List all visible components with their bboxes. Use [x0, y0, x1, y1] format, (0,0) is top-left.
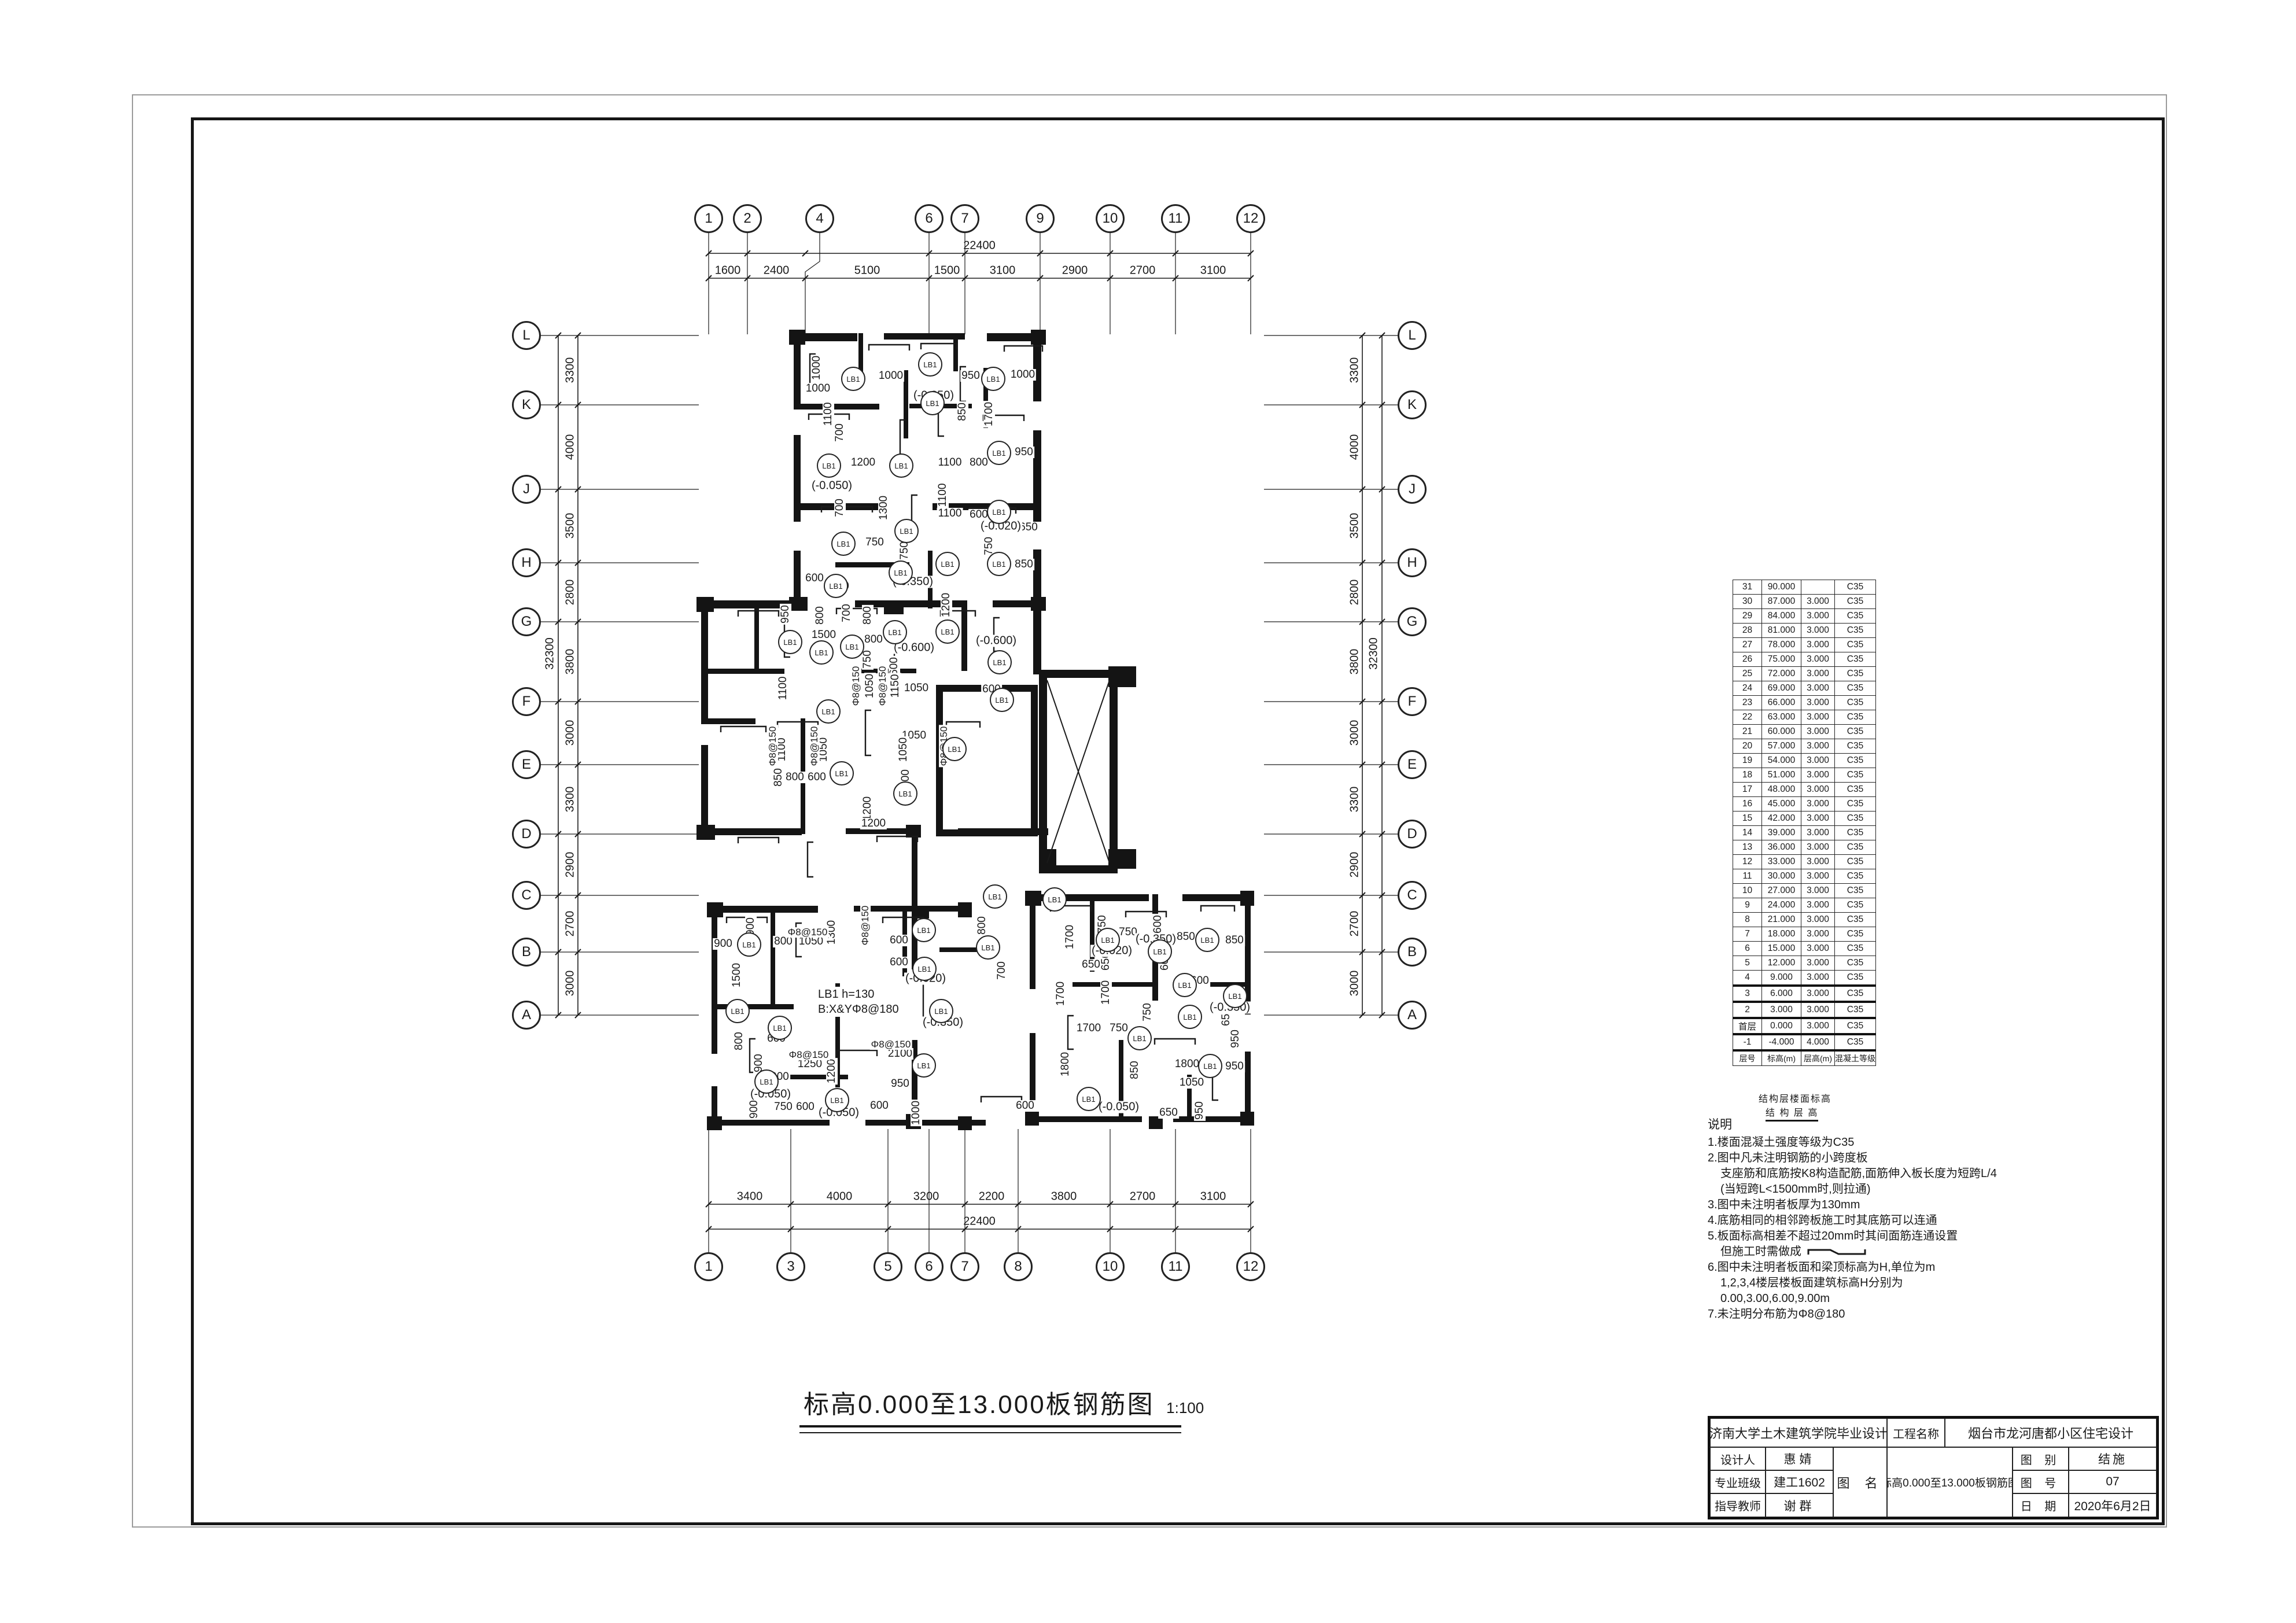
step-symbol-icon	[1807, 1246, 1871, 1258]
slab-tag-lb1: LB1	[920, 391, 945, 415]
grid-bubble-right-F: F	[1398, 687, 1427, 716]
floor-table-cell: C35	[1835, 1018, 1876, 1034]
floor-table-cell: 6	[1733, 942, 1762, 956]
plan-dim: 600	[889, 935, 909, 946]
slab-tag-lb1: LB1	[987, 552, 1011, 576]
floor-table-cell: 31	[1733, 580, 1762, 595]
plan-dim: 1800	[1060, 1051, 1071, 1078]
slab-tag-lb1: LB1	[831, 532, 856, 556]
plan-dim: 1700	[1100, 979, 1112, 1006]
floor-table-cell: 3.000	[1801, 667, 1835, 681]
elevation-label: (-0.600)	[975, 635, 1018, 647]
left-segment-dim: 3000	[564, 720, 577, 746]
floor-table-cell: 12	[1733, 855, 1762, 869]
plan-dim: 950	[1194, 1100, 1206, 1121]
plan-dim: 1100	[937, 482, 949, 508]
floor-table-cell: 3.000	[1801, 826, 1835, 840]
floor-table-cell: C35	[1835, 768, 1876, 783]
rebar-spec: Φ8@150	[787, 927, 829, 938]
slab-tag-lb1: LB1	[816, 699, 841, 724]
plan-dim: 800	[815, 605, 826, 626]
floor-table-cell: -4.000	[1762, 1034, 1801, 1050]
slab-tag-lb1: LB1	[840, 635, 864, 659]
floor-table-row: 2263.0003.000C35	[1733, 710, 1876, 725]
grid-bubble-right-D: D	[1398, 820, 1427, 849]
plan-dim: 850	[1014, 559, 1034, 570]
floor-table-cell: 33.000	[1762, 855, 1801, 869]
note-line: 1,2,3,4楼层楼板面建筑标高H分别为	[1708, 1275, 2078, 1291]
top-segment-dim: 5100	[854, 264, 880, 278]
slab-tag-lb1: LB1	[893, 781, 917, 806]
floor-table-cell: 3.000	[1801, 681, 1835, 696]
floor-table-cell: 3.000	[1801, 1002, 1835, 1018]
slab-tag-lb1: LB1	[918, 352, 942, 377]
plan-dim: 900	[713, 938, 734, 950]
plan-dim: 800	[784, 772, 805, 783]
grid-bubble-top-12: 12	[1236, 204, 1265, 233]
slab-tag-lb1: LB1	[1096, 928, 1120, 952]
floor-table-cell: 63.000	[1762, 710, 1801, 725]
left-segment-dim: 3300	[564, 357, 577, 383]
plan-dim: 750	[862, 649, 874, 670]
slab-tag-lb1: LB1	[929, 999, 953, 1023]
floor-table-cell: 3.000	[1801, 1018, 1835, 1034]
floor-table-cell: C35	[1835, 739, 1876, 754]
left-segment-dim: 2800	[564, 580, 577, 606]
floor-table-cell: C35	[1835, 840, 1876, 855]
floor-table-cell: 7	[1733, 927, 1762, 942]
floor-table-cell: 3.000	[1801, 884, 1835, 898]
plan-dim: 600	[1015, 1100, 1035, 1112]
drawing-sheet: 1246791011122240016002400510015003100290…	[0, 0, 2296, 1623]
floor-table-row: 2572.0003.000C35	[1733, 667, 1876, 681]
grid-bubble-bottom-11: 11	[1161, 1252, 1190, 1281]
floor-table-cell: 11	[1733, 869, 1762, 884]
grid-bubble-top-10: 10	[1096, 204, 1125, 233]
plan-dim: 1700	[1075, 1023, 1102, 1034]
note-line: 2.图中凡未注明钢筋的小跨度板	[1708, 1150, 2078, 1166]
plan-dim: 750	[864, 537, 885, 548]
floor-table-cell: 69.000	[1762, 681, 1801, 696]
plan-dim: 1050	[898, 736, 909, 763]
floor-table-caption1: 结构层楼面标高	[1759, 1091, 1831, 1105]
floor-table-row: 2160.0003.000C35	[1733, 725, 1876, 739]
plan-dim: 1700	[983, 401, 995, 427]
slab-tag-lb1: LB1	[942, 737, 967, 761]
slab-note-label: LB1 h=130 B:X&YΦ8@180	[818, 987, 899, 1017]
elevation-label: (-0.050)	[810, 480, 853, 492]
grid-bubble-left-C: C	[512, 881, 541, 910]
plan-dim: 700	[834, 497, 846, 518]
floor-table-cell: 4.000	[1801, 1034, 1835, 1050]
grid-bubble-bottom-1: 1	[694, 1252, 723, 1281]
floor-table-row: 3087.0003.000C35	[1733, 595, 1876, 609]
floor-table-row: 1748.0003.000C35	[1733, 783, 1876, 797]
plan-dim: 700	[841, 603, 853, 624]
grid-bubble-top-9: 9	[1026, 204, 1055, 233]
floor-table-cell: 45.000	[1762, 797, 1801, 811]
bottom-overall-dim: 22400	[963, 1215, 996, 1229]
floor-table-header-row: 层号标高(m)层高(m)混凝土等级	[1733, 1050, 1876, 1066]
bottom-segment-dim: 4000	[827, 1190, 853, 1204]
floor-table-row: 1954.0003.000C35	[1733, 754, 1876, 768]
title-underline-thick	[799, 1425, 1181, 1427]
floor-table-cell: 23	[1733, 696, 1762, 710]
floor-table-cell: 54.000	[1762, 754, 1801, 768]
plan-dim: 600	[1152, 914, 1164, 935]
class-label: 专业班级	[1710, 1470, 1766, 1493]
notes-block: 说明 1.楼面混凝土强度等级为C352.图中凡未注明钢筋的小跨度板支座筋和底筋按…	[1708, 1115, 2078, 1322]
grid-bubble-right-G: G	[1398, 607, 1427, 636]
floor-table-cell: 24	[1733, 681, 1762, 696]
plan-dim: 1700	[1055, 980, 1067, 1007]
plan-dim: 900	[749, 1099, 760, 1120]
plan-dim: 800	[968, 457, 989, 469]
plan-dim: 750	[899, 540, 911, 561]
plan-dim: 600	[795, 1101, 816, 1113]
floor-table-cell: 首层	[1733, 1018, 1762, 1034]
note-line: 5.板面标高相差不超过20mm时其间面筋连通设置	[1708, 1229, 2078, 1244]
floor-table-cell: 17	[1733, 783, 1762, 797]
floor-table-cell: C35	[1835, 667, 1876, 681]
plan-dim: 1500	[810, 629, 837, 641]
floor-table-cell: 18.000	[1762, 927, 1801, 942]
grid-bubble-right-H: H	[1398, 548, 1427, 577]
right-overall-dim: 32300	[1368, 637, 1381, 670]
floor-table-cell: 6.000	[1762, 986, 1801, 1002]
rebar-spec: Φ8@150	[860, 905, 871, 947]
floor-table-cell: 3.000	[1801, 739, 1835, 754]
note-line: (当短跨L<1500mm时,则拉通)	[1708, 1182, 2078, 1197]
floor-table-cell: 27.000	[1762, 884, 1801, 898]
floor-table-cell: 75.000	[1762, 652, 1801, 667]
floor-table-cell: C35	[1835, 986, 1876, 1002]
slab-tag-lb1: LB1	[894, 519, 919, 543]
plan-dim: 950	[890, 1078, 911, 1090]
floor-table-row: 首层0.0003.000C35	[1733, 1018, 1876, 1034]
designer-value: 惠婧	[1766, 1447, 1833, 1470]
slab-tag-lb1: LB1	[1077, 1087, 1101, 1111]
floor-table-cell: C35	[1835, 681, 1876, 696]
plan-dim: 850	[1224, 935, 1245, 946]
floor-table-cell: 3.000	[1801, 942, 1835, 956]
floor-table-cell: C35	[1835, 580, 1876, 595]
grid-bubble-left-G: G	[512, 607, 541, 636]
floor-table-cell: 18	[1733, 768, 1762, 783]
slab-tag-lb1: LB1	[825, 1088, 849, 1112]
top-segment-dim: 3100	[990, 264, 1016, 278]
grid-bubble-left-K: K	[512, 390, 541, 419]
floor-table-cell: 3.000	[1801, 811, 1835, 826]
floor-table-cell: 3.000	[1801, 783, 1835, 797]
floor-table-cell: C35	[1835, 811, 1876, 826]
plan-dim: 850	[1129, 1060, 1141, 1080]
plan-dim: 1000	[811, 355, 823, 381]
note-line: 支座筋和底筋按K8构造配筋,面筋伸入板长度为短跨L/4	[1708, 1166, 2078, 1182]
floor-table-cell: C35	[1835, 1002, 1876, 1018]
left-segment-dim: 3300	[564, 787, 577, 813]
floor-table-cell: 12.000	[1762, 956, 1801, 971]
plan-dim: 1100	[777, 676, 789, 702]
plan-dim: 650	[1158, 1107, 1179, 1119]
plan-dim: 950	[1014, 447, 1034, 458]
floor-table-cell: 25	[1733, 667, 1762, 681]
plan-dim: 600	[804, 573, 825, 584]
floor-table-cell: 60.000	[1762, 725, 1801, 739]
grid-bubble-bottom-10: 10	[1096, 1252, 1125, 1281]
floor-table-cell: C35	[1835, 710, 1876, 725]
plan-dim: 800	[976, 915, 988, 936]
grid-bubble-top-6: 6	[915, 204, 944, 233]
plan-dim: 800	[734, 1031, 745, 1052]
top-segment-dim: 3100	[1200, 264, 1226, 278]
floor-table-row: 718.0003.000C35	[1733, 927, 1876, 942]
floor-table-cell: 3.000	[1801, 652, 1835, 667]
floor-table-cell: 19	[1733, 754, 1762, 768]
slab-tag-lb1: LB1	[912, 1053, 936, 1078]
grid-bubble-right-C: C	[1398, 881, 1427, 910]
floor-table-cell: C35	[1835, 754, 1876, 768]
title-block-project-label: 工程名称	[1887, 1418, 1945, 1447]
plan-dim: 1050	[864, 673, 876, 699]
plan-dim: 1050	[903, 683, 930, 694]
slab-tag-lb1: LB1	[768, 1016, 792, 1040]
fig-name-label: 图 名	[1833, 1447, 1887, 1517]
plan-dim: 1700	[1064, 924, 1076, 950]
slab-tag-lb1: LB1	[889, 560, 913, 585]
floor-table-header-cell: 标高(m)	[1762, 1050, 1801, 1066]
floor-table-cell: 3.000	[1801, 971, 1835, 986]
fig-name-value: 标高0.000至13.000板钢筋图	[1887, 1447, 2013, 1517]
date-label: 日 期	[2013, 1493, 2069, 1517]
grid-bubble-top-2: 2	[733, 204, 762, 233]
plan-dim: 1000	[805, 383, 831, 394]
floor-table-cell: C35	[1835, 927, 1876, 942]
slab-tag-lb1: LB1	[754, 1069, 779, 1094]
floor-table-row: -1-4.0004.000C35	[1733, 1034, 1876, 1050]
bottom-segment-dim: 3200	[913, 1190, 939, 1204]
left-segment-dim: 2700	[564, 911, 577, 937]
slab-tag-lb1: LB1	[778, 630, 802, 654]
plan-dim: 750	[773, 1101, 794, 1113]
bottom-segment-dim: 3100	[1200, 1190, 1226, 1204]
grid-bubble-bottom-3: 3	[776, 1252, 805, 1281]
plan-dim: 750	[1108, 1023, 1129, 1034]
floor-table-row: 1027.0003.000C35	[1733, 884, 1876, 898]
floor-table-cell: 3.000	[1801, 624, 1835, 638]
slab-tag-lb1: LB1	[987, 650, 1012, 674]
plan-dim: 1200	[826, 1058, 838, 1085]
slab-tag-lb1: LB1	[935, 619, 960, 644]
floor-table-header-cell: 混凝土等级	[1835, 1050, 1876, 1066]
slab-tag-lb1: LB1	[830, 761, 854, 785]
notes-title: 说明	[1708, 1115, 2078, 1133]
floor-table-row: 3190.000C35	[1733, 580, 1876, 595]
floor-table-row: 2778.0003.000C35	[1733, 638, 1876, 652]
slab-tag-lb1: LB1	[817, 453, 841, 478]
rebar-spec: Φ8@150	[851, 665, 861, 707]
floor-table-cell: 5	[1733, 956, 1762, 971]
slab-tag-lb1: LB1	[1195, 928, 1219, 952]
right-segment-dim: 3300	[1348, 357, 1362, 383]
slab-tag-lb1: LB1	[725, 999, 750, 1023]
floor-table-cell: 36.000	[1762, 840, 1801, 855]
rebar-spec: Φ8@150	[768, 725, 778, 768]
floor-table-cell: C35	[1835, 624, 1876, 638]
grid-bubble-right-B: B	[1398, 938, 1427, 967]
floor-table-cell: 10	[1733, 884, 1762, 898]
slab-tag-lb1: LB1	[912, 918, 936, 942]
floor-table-row: 2675.0003.000C35	[1733, 652, 1876, 667]
grid-bubble-right-K: K	[1398, 390, 1427, 419]
plan-dim: 1000	[1009, 369, 1036, 381]
slab-tag-lb1: LB1	[987, 441, 1011, 465]
right-segment-dim: 3300	[1348, 787, 1362, 813]
title-underline-thin	[799, 1432, 1181, 1433]
right-segment-dim: 2700	[1348, 911, 1362, 937]
right-segment-dim: 3000	[1348, 971, 1362, 997]
floor-table-cell: C35	[1835, 638, 1876, 652]
floor-table-cell: 27	[1733, 638, 1762, 652]
fig-type-label: 图 别	[2013, 1447, 2069, 1470]
plan-dim: 800	[863, 634, 884, 645]
floor-table-cell: 3.000	[1801, 927, 1835, 942]
floor-table-cell: C35	[1835, 855, 1876, 869]
bottom-segment-dim: 3800	[1051, 1190, 1077, 1204]
floor-table-cell: 15.000	[1762, 942, 1801, 956]
grid-bubble-left-L: L	[512, 321, 541, 350]
floor-table-header-cell: 层号	[1733, 1050, 1762, 1066]
floor-table-cell: 3.000	[1801, 696, 1835, 710]
floor-table-cell: 30.000	[1762, 869, 1801, 884]
floor-table-cell: 72.000	[1762, 667, 1801, 681]
floor-table-cell: 9	[1733, 898, 1762, 913]
left-overall-dim: 32300	[544, 637, 557, 670]
floor-table-row: 512.0003.000C35	[1733, 956, 1876, 971]
floor-table-cell: C35	[1835, 869, 1876, 884]
floor-table-row: 1130.0003.000C35	[1733, 869, 1876, 884]
floor-table-cell: 8	[1733, 913, 1762, 927]
floor-table-row: 1645.0003.000C35	[1733, 797, 1876, 811]
floor-table-cell: C35	[1835, 956, 1876, 971]
floor-table-cell: 87.000	[1762, 595, 1801, 609]
floor-table-cell: C35	[1835, 595, 1876, 609]
grid-bubble-top-4: 4	[805, 204, 834, 233]
slab-tag-lb1: LB1	[1178, 1005, 1202, 1029]
floor-table-cell: C35	[1835, 696, 1876, 710]
plan-dim: 1000	[911, 1100, 922, 1126]
bottom-segment-dim: 2200	[979, 1190, 1005, 1204]
left-segment-dim: 2900	[564, 852, 577, 878]
floor-table-cell: 78.000	[1762, 638, 1801, 652]
slab-tag-lb1: LB1	[976, 935, 1000, 960]
floor-table-row: 615.0003.000C35	[1733, 942, 1876, 956]
floor-table-cell: C35	[1835, 913, 1876, 927]
grid-bubble-bottom-8: 8	[1004, 1252, 1033, 1281]
floor-table-row: 23.0003.000C35	[1733, 1002, 1876, 1018]
plan-dim: 850	[1175, 931, 1196, 943]
plan-dim: 1100	[937, 457, 963, 469]
floor-table-cell: 3.000	[1801, 595, 1835, 609]
drawing-scale: 1:100	[1166, 1399, 1204, 1417]
grid-bubble-top-11: 11	[1161, 204, 1190, 233]
plan-dim: 750	[1142, 1002, 1153, 1023]
floor-table-cell: 9.000	[1762, 971, 1801, 986]
floor-table-cell: 30	[1733, 595, 1762, 609]
floor-table-cell: 57.000	[1762, 739, 1801, 754]
plan-dim: 1500	[731, 962, 743, 988]
floor-table-cell: 26	[1733, 652, 1762, 667]
floor-table-cell: C35	[1835, 797, 1876, 811]
date-value: 2020年6月2日	[2069, 1493, 2157, 1517]
note-line: 6.图中未注明者板面和梁顶标高为H,单位为m	[1708, 1260, 2078, 1275]
floor-table-cell: 3.000	[1801, 754, 1835, 768]
floor-table-cell: 24.000	[1762, 898, 1801, 913]
grid-bubble-top-1: 1	[694, 204, 723, 233]
slab-tag-lb1: LB1	[1042, 887, 1067, 912]
floor-table-cell: C35	[1835, 884, 1876, 898]
grid-bubble-bottom-12: 12	[1236, 1252, 1265, 1281]
grid-bubble-right-E: E	[1398, 750, 1427, 779]
grid-bubble-left-B: B	[512, 938, 541, 967]
advisor-label: 指导教师	[1710, 1493, 1766, 1517]
floor-table-cell	[1801, 580, 1835, 595]
top-segment-dim: 1500	[934, 264, 960, 278]
slab-tag-lb1: LB1	[1148, 939, 1172, 964]
title-block-project-name: 烟台市龙河唐都小区住宅设计	[1945, 1418, 2157, 1447]
floor-table-row: 821.0003.000C35	[1733, 913, 1876, 927]
plan-dim: 1300	[878, 495, 890, 521]
floor-table-cell: C35	[1835, 971, 1876, 986]
left-segment-dim: 4000	[564, 434, 577, 460]
top-segment-dim: 2900	[1062, 264, 1088, 278]
floor-table-cell: 3.000	[1801, 638, 1835, 652]
rebar-spec: Φ8@150	[809, 725, 820, 768]
floor-table-cell: 66.000	[1762, 696, 1801, 710]
floor-table-cell: C35	[1835, 1034, 1876, 1050]
top-overall-dim: 22400	[963, 239, 996, 253]
grid-bubble-right-A: A	[1398, 1001, 1427, 1030]
floor-table-cell: C35	[1835, 652, 1876, 667]
right-segment-dim: 2800	[1348, 580, 1362, 606]
slab-tag-lb1: LB1	[987, 500, 1011, 524]
floor-table-cell: 28	[1733, 624, 1762, 638]
note-line: 3.图中未注明者板厚为130mm	[1708, 1197, 2078, 1213]
slab-tag-lb1: LB1	[883, 620, 907, 644]
floor-table-cell: 48.000	[1762, 783, 1801, 797]
floor-table-cell: 0.000	[1762, 1018, 1801, 1034]
floor-table-cell: 4	[1733, 971, 1762, 986]
note-line: 1.楼面混凝土强度等级为C35	[1708, 1135, 2078, 1150]
slab-tag-lb1: LB1	[1173, 973, 1197, 997]
floor-table-cell: C35	[1835, 826, 1876, 840]
grid-bubble-left-D: D	[512, 820, 541, 849]
floor-table-cell: 20	[1733, 739, 1762, 754]
floor-table-cell: 3.000	[1801, 768, 1835, 783]
slab-tag-lb1: LB1	[912, 957, 937, 981]
grid-bubble-left-H: H	[512, 548, 541, 577]
bottom-segment-dim: 3400	[737, 1190, 763, 1204]
floor-table-cell: 22	[1733, 710, 1762, 725]
floor-table-cell: 3.000	[1801, 725, 1835, 739]
slab-tag-lb1: LB1	[809, 640, 834, 665]
floor-table-row: 1542.0003.000C35	[1733, 811, 1876, 826]
slab-tag-lb1: LB1	[981, 367, 1005, 391]
note-line: 4.底筋相同的相邻跨板施工时其底筋可以连通	[1708, 1213, 2078, 1229]
plan-dim: 1100	[937, 508, 963, 519]
slab-tag-lb1: LB1	[983, 884, 1007, 909]
plan-dim: 600	[968, 509, 989, 521]
